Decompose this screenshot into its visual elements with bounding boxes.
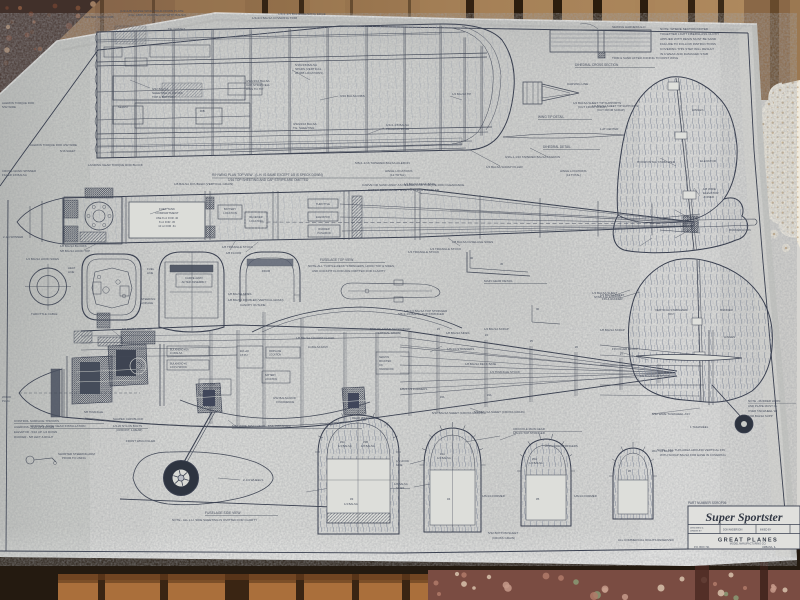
svg-text:RIBS TO TIP: RIBS TO TIP (246, 87, 263, 91)
svg-text:TOP & BOTTOM: TOP & BOTTOM (152, 95, 175, 99)
svg-text:5/8x1-1/16 TAPERED BALSA AILER: 5/8x1-1/16 TAPERED BALSA AILERON (355, 161, 410, 165)
svg-text:5/8 TRIANGLE: 5/8 TRIANGLE (84, 410, 103, 414)
svg-text:1 TAILWHEEL: 1 TAILWHEEL (690, 425, 709, 429)
svg-text:1/8 BALSA COCKPIT FLOOR: 1/8 BALSA COCKPIT FLOOR (296, 336, 334, 340)
svg-text:9/16 BALSA RIBS: 9/16 BALSA RIBS (340, 94, 365, 98)
svg-text:TRAILING EDGE: TRAILING EDGE (386, 127, 409, 131)
svg-text:COVERING THIS STEP WILL RESULT: COVERING THIS STEP WILL RESULT (660, 47, 714, 51)
svg-text:(12 TOTAL): (12 TOTAL) (390, 173, 406, 177)
svg-text:ELEVATOR: ELEVATOR (700, 159, 717, 163)
svg-text:1/4 BALSA SCRAP FILLER: 1/4 BALSA SCRAP FILLER (486, 165, 523, 169)
svg-text:TRIM & SAND AFTER JOINING TO F: TRIM & SAND AFTER JOINING TO FIRST WING (612, 56, 679, 60)
svg-text:1/4 BALSA DASH: 1/4 BALSA DASH (308, 346, 328, 349)
svg-text:0 INCIDENCE: 0 INCIDENCE (276, 400, 294, 404)
svg-text:LINE: LINE (68, 270, 74, 274)
svg-text:90: 90 (470, 256, 474, 260)
svg-text:PUSHROD: PUSHROD (317, 231, 330, 235)
svg-text:1/8 BALSA BLOCKS: 1/8 BALSA BLOCKS (60, 244, 87, 248)
svg-text:ALERON TORQUE ROD 3/32 WIRE: ALERON TORQUE ROD 3/32 WIRE (30, 143, 77, 147)
svg-text:AND PLATE MUST CL: AND PLATE MUST CL (748, 404, 778, 408)
svg-text:1/4 TRIANGLE STOCK: 1/4 TRIANGLE STOCK (640, 374, 670, 378)
svg-text:90: 90 (536, 307, 540, 311)
svg-text:(CUT FROM SCRAP): (CUT FROM SCRAP) (597, 108, 625, 112)
svg-text:RECEIVER: RECEIVER (249, 215, 262, 219)
svg-text:CARVING LINE: CARVING LINE (567, 82, 588, 86)
svg-text:FIN & RUDDER: FIN & RUDDER (602, 297, 623, 301)
svg-text:RUDDER: RUDDER (318, 227, 330, 231)
svg-text:1/8 BALSA SIDES: 1/8 BALSA SIDES (228, 292, 252, 296)
svg-text:HORIZONTAL STABILIZER: HORIZONTAL STABILIZER (637, 160, 676, 164)
svg-text:DRUM: DRUM (262, 269, 271, 273)
svg-text:NOTE - RUDDER HORN: NOTE - RUDDER HORN (748, 399, 780, 403)
svg-text:AT RIB LOCATIONS): AT RIB LOCATIONS) (295, 71, 323, 75)
svg-text:1/8 FLOOR: 1/8 FLOOR (226, 251, 242, 255)
svg-text:PART NUMBER SSROP06: PART NUMBER SSROP06 (688, 501, 727, 505)
svg-text:PLUG: PLUG (2, 399, 10, 403)
svg-text:1/8x1-1/4 FORMERS: 1/8x1-1/4 FORMERS (400, 387, 427, 391)
svg-text:1/16 TOP SHEETING AND CAP STRI: 1/16 TOP SHEETING AND CAP STRIPS ARE OMI… (228, 178, 309, 182)
svg-text:#4: #4 (447, 497, 451, 501)
svg-text:APPLIED WITH RESIN MUST BE SAN: APPLIED WITH RESIN MUST BE SAND (660, 37, 717, 41)
svg-text:HARDWOOD: HARDWOOD (379, 368, 394, 371)
svg-text:1/4 BALSA HOOD SIDES: 1/4 BALSA HOOD SIDES (26, 257, 59, 261)
svg-text:CENTER SERVO RIB: CENTER SERVO RIB (84, 15, 113, 19)
svg-text:SIDES: SIDES (396, 486, 405, 490)
svg-text:9/16+1-1/16 TAPERED BALSA AILE: 9/16+1-1/16 TAPERED BALSA AILERON (505, 155, 560, 159)
svg-text:DESIGNED &: DESIGNED & (690, 528, 704, 530)
svg-text:SERVO: SERVO (118, 105, 129, 109)
svg-text:#5: #5 (536, 497, 540, 501)
svg-text:FRONT WING FILLER: FRONT WING FILLER (126, 439, 155, 443)
svg-text:1/8 TRIANGLE STOCK: 1/8 TRIANGLE STOCK (222, 245, 253, 249)
svg-text:NOTE: WHERE SECTION NOTED: NOTE: WHERE SECTION NOTED (660, 27, 709, 31)
svg-text:1/4 BALSA DECK BASE: 1/4 BALSA DECK BASE (404, 182, 435, 186)
svg-text:1/4 TRIANGLE STOCK: 1/4 TRIANGLE STOCK (490, 370, 520, 374)
svg-text:1/8 BALSA SIDES: 1/8 BALSA SIDES (446, 331, 470, 335)
svg-text:BATTERY: BATTERY (224, 207, 236, 211)
svg-text:1/8x1/4 STRINGERS: 1/8x1/4 STRINGERS (447, 347, 474, 351)
svg-text:W 1/4 SIDE STRINGERS: W 1/4 SIDE STRINGERS (545, 444, 578, 448)
svg-text:LOCATION: LOCATION (223, 211, 237, 215)
svg-text:1/8x1/4 TOP STRINGER: 1/8x1/4 TOP STRINGER (513, 431, 545, 435)
svg-text:#2A +#2: #2A +#2 (240, 350, 250, 353)
svg-text:SERVOS: SERVOS (379, 356, 389, 359)
svg-text:1/4 BALSA: 1/4 BALSA (529, 461, 543, 465)
svg-text:INKED BY: INKED BY (760, 529, 772, 532)
svg-text:PRIOR TO USING: PRIOR TO USING (62, 456, 87, 460)
svg-text:LANDING GEAR TORQUE ROD BLOCK: LANDING GEAR TORQUE ROD BLOCK (88, 163, 143, 167)
svg-text:1/8 PLY: 1/8 PLY (240, 354, 249, 357)
svg-text:WITH SCRAP BALSA FOR EASE IN C: WITH SCRAP BALSA FOR EASE IN COVERING (660, 453, 726, 457)
svg-text:#3A: #3A (440, 396, 445, 399)
svg-text:5/32 WIRE TAILWHEEL ASY: 5/32 WIRE TAILWHEEL ASY (652, 412, 690, 416)
svg-text:FOR BALSA SUPP: FOR BALSA SUPP (748, 414, 773, 418)
svg-text:FUSELAGE SIDE VIEW: FUSELAGE SIDE VIEW (205, 511, 241, 515)
svg-text:5/16 SHEET: 5/16 SHEET (60, 149, 76, 153)
svg-text:'FIN': 'FIN' (668, 312, 674, 316)
svg-text:WING TIP DETAIL: WING TIP DETAIL (538, 115, 564, 119)
svg-text:NOTE - ALL L.H. SIDE SHEETING: NOTE - ALL L.H. SIDE SHEETING IS OMITTED… (172, 518, 257, 522)
svg-text:(FILL ABOUT AND BELOW WITH BAL: (FILL ABOUT AND BELOW WITH BALSA) (128, 13, 186, 17)
svg-text:LINE: LINE (147, 271, 153, 275)
svg-text:1/4 BALSA: 1/4 BALSA (338, 444, 352, 448)
svg-text:DIHEDRAL CROSS SECTION: DIHEDRAL CROSS SECTION (575, 63, 619, 67)
svg-text:USE 8 oz FOR .40: USE 8 oz FOR .40 (156, 216, 179, 220)
svg-text:URBANA, IL: URBANA, IL (762, 546, 777, 549)
svg-text:LINKAGE: LINKAGE (141, 301, 153, 305)
svg-text:5/32 BALSA SHEET (CROSS GRAIN): 5/32 BALSA SHEET (CROSS GRAIN) (474, 410, 525, 414)
svg-text:#3: #3 (350, 497, 354, 501)
svg-text:FILLER 1/8 BALSA: FILLER 1/8 BALSA (2, 173, 27, 177)
svg-text:FUSELAGE TOP VIEW: FUSELAGE TOP VIEW (320, 258, 353, 262)
svg-text:HINGES: HINGES (692, 108, 704, 112)
svg-text:MODEL MANUFACTURING CO.: MODEL MANUFACTURING CO. (730, 543, 767, 546)
svg-text:#4A: #4A (487, 394, 492, 397)
svg-text:1/8x1/4 FORMER: 1/8x1/4 FORMER (482, 494, 505, 498)
svg-text:RIB: RIB (200, 109, 205, 113)
svg-text:OVER TAILWHEEL WI: OVER TAILWHEEL WI (748, 409, 777, 413)
svg-text:LOCATION: LOCATION (249, 219, 262, 223)
svg-text:5/32 WIRE: 5/32 WIRE (2, 105, 16, 109)
svg-text:NOTE-ALL 'TURTLE-DECK' STRINGE: NOTE-ALL 'TURTLE-DECK' STRINGERS, HOOD T… (308, 264, 395, 268)
svg-text:BATTERY: BATTERY (265, 374, 276, 377)
svg-text:RUDDER - 5/8 LEFT & RIGHT: RUDDER - 5/8 LEFT & RIGHT (14, 435, 54, 439)
svg-text:THROTTLE: THROTTLE (316, 202, 330, 206)
svg-text:1/8 BALSA FUSELAGE SIDES: 1/8 BALSA FUSELAGE SIDES (452, 240, 493, 244)
svg-text:1/8 PLYWOOD: 1/8 PLYWOOD (170, 366, 187, 369)
svg-text:1/8 BALSA: 1/8 BALSA (361, 444, 375, 448)
svg-text:1/4 BALSA: 1/4 BALSA (170, 352, 183, 355)
svg-text:ON: ON (379, 364, 383, 367)
svg-text:SEWING HARNESS E-D: SEWING HARNESS E-D (612, 25, 646, 29)
svg-text:ELEVATOR - 5/16 UP, 1/4 DOWN: ELEVATOR - 5/16 UP, 1/4 DOWN (14, 430, 57, 434)
svg-text:1/4 BALSA TIP: 1/4 BALSA TIP (452, 92, 471, 96)
svg-text:1/8 BALSA DECK BASE: 1/8 BALSA DECK BASE (465, 362, 496, 366)
svg-text:5/32 BOTTOM SHEET: 5/32 BOTTOM SHEET (488, 531, 518, 535)
svg-text:LOCATION: LOCATION (269, 354, 281, 357)
svg-text:AND COCKPIT FLOOR ARE OMITTED: AND COCKPIT FLOOR ARE OMITTED FOR CLARIT… (312, 269, 385, 273)
svg-text:DIHEDRAL DETAIL: DIHEDRAL DETAIL (543, 145, 571, 149)
svg-text:1 AT CENTER: 1 AT CENTER (600, 127, 618, 131)
svg-text:T.E. GUSSET: T.E. GUSSET (168, 27, 185, 31)
svg-text:5/8 BALSA HOOD TOP: 5/8 BALSA HOOD TOP (60, 249, 90, 253)
svg-text:JOINER: JOINER (703, 195, 715, 199)
svg-text:AILERONS - 5/16 UP & DOWN: AILERONS - 5/16 UP & DOWN (14, 425, 54, 429)
svg-text:SHAPED CHIN BLOCK: SHAPED CHIN BLOCK (113, 417, 143, 421)
svg-text:1/8 BALSA SCRAP: 1/8 BALSA SCRAP (600, 328, 625, 332)
svg-text:MAIN GEAR DETAIL: MAIN GEAR DETAIL (484, 279, 513, 283)
svg-text:HINGES: HINGES (724, 335, 735, 339)
svg-text:MOUNTED: MOUNTED (379, 360, 391, 363)
svg-text:1/4x1/4 BALSA TOP STRINGER: 1/4x1/4 BALSA TOP STRINGER (404, 309, 448, 313)
svg-text:DRAWN BY: DRAWN BY (690, 530, 702, 533)
svg-text:RUDDER: RUDDER (720, 308, 734, 312)
svg-text:(VERTICAL GRAIN): (VERTICAL GRAIN) (375, 331, 401, 335)
svg-text:#6A - 1/4 BALSA: #6A - 1/4 BALSA (652, 449, 673, 453)
svg-text:1/8 BALSA DOUBLER (VERTICAL GR: 1/8 BALSA DOUBLER (VERTICAL GRAIN) (228, 298, 283, 302)
svg-text:TOGETHER LIGHT FIBERGLASS CL: TOGETHER LIGHT FIBERGLASS CLOTH (660, 32, 719, 36)
svg-text:Super Sportster: Super Sportster (705, 510, 782, 524)
svg-text:CANOPY OUTLINE: CANOPY OUTLINE (240, 303, 266, 307)
svg-text:#6: #6 (628, 469, 632, 473)
svg-text:2-1/4 WHEELS: 2-1/4 WHEELS (243, 478, 263, 482)
svg-text:5/32 WIRE MAIN GEAR - TAIL-DRA: 5/32 WIRE MAIN GEAR - TAIL-DRAGGER (232, 424, 292, 428)
svg-text:CONTROL SURFACE THROWS: CONTROL SURFACE THROWS (14, 419, 59, 423)
svg-text:1/8 BALSA DOUBLER (VERTICAL GR: 1/8 BALSA DOUBLER (VERTICAL GRAIN) (174, 182, 233, 186)
svg-text:8 oz FOR .45: 8 oz FOR .45 (159, 220, 175, 224)
svg-text:THROTTLE CABLE: THROTTLE CABLE (31, 312, 58, 316)
svg-text:P.O. BOX 721: P.O. BOX 721 (694, 546, 710, 549)
svg-text:SIDE: SIDE (396, 463, 403, 467)
svg-text:IN A WEAK AND DAMAGED STAB: IN A WEAK AND DAMAGED STAB (660, 52, 708, 56)
svg-text:RUDDER HORN: RUDDER HORN (729, 228, 751, 232)
svg-text:1/4 BALSA: 1/4 BALSA (437, 456, 451, 460)
svg-text:2-1/4 SPINNER: 2-1/4 SPINNER (3, 235, 23, 239)
svg-text:(12 TOTAL): (12 TOTAL) (566, 173, 581, 177)
svg-text:DON ANDERSON: DON ANDERSON (723, 529, 743, 532)
svg-text:1/8x1/4 FORMER: 1/8x1/4 FORMER (574, 494, 597, 498)
svg-text:R/H WING PLAN TOP VIEW - (L.H.: R/H WING PLAN TOP VIEW - (L.H. IS SAME E… (212, 173, 323, 177)
svg-text:ELEVATOR: ELEVATOR (316, 215, 330, 219)
svg-text:10 oz FOR .61: 10 oz FOR .61 (158, 224, 176, 228)
svg-text:FAILURE TO FOLLOW INSTRUCTIONS: FAILURE TO FOLLOW INSTRUCTIONS (660, 42, 716, 46)
svg-text:(CROSS GRAIN): (CROSS GRAIN) (492, 536, 515, 540)
svg-text:T.E. SHEETING: T.E. SHEETING (293, 126, 315, 130)
svg-text:AFTER ASSEMBLY: AFTER ASSEMBLY (182, 280, 207, 284)
svg-text:1/4 TRIANGLE STOCK: 1/4 TRIANGLE STOCK (408, 250, 439, 254)
svg-text:1/4 BALSA: 1/4 BALSA (344, 502, 358, 506)
svg-text:45: 45 (500, 262, 504, 266)
svg-text:1/4 BALSA SCRAP: 1/4 BALSA SCRAP (484, 327, 509, 331)
svg-text:1/4x1/4 BALSA COVERING TRIM: 1/4x1/4 BALSA COVERING TRIM (252, 16, 298, 20)
svg-text:LOCATION: LOCATION (265, 378, 277, 381)
svg-text:COMPARTMENT: COMPARTMENT (155, 211, 178, 215)
svg-text:ALL COMMERCIAL RIGHTS RESERVED: ALL COMMERCIAL RIGHTS RESERVED (618, 538, 675, 542)
